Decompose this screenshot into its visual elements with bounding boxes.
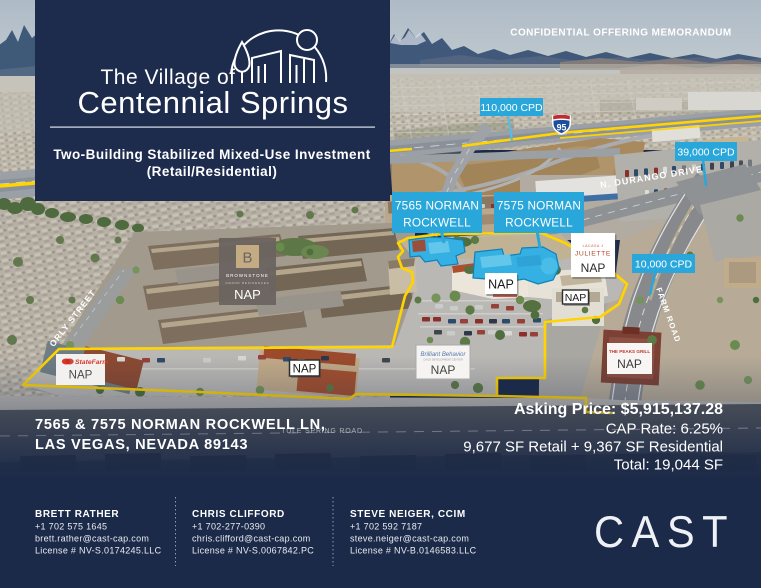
svg-text:NAP: NAP: [565, 292, 587, 304]
svg-text:JULIETTE: JULIETTE: [575, 251, 611, 258]
svg-text:NAP: NAP: [234, 287, 261, 302]
svg-text:7575 NORMAN: 7575 NORMAN: [497, 199, 581, 213]
svg-text:NAP: NAP: [293, 364, 317, 376]
svg-text:GRAND RESIDENCES: GRAND RESIDENCES: [226, 281, 270, 285]
svg-text:THE PEAKS GRILL: THE PEAKS GRILL: [609, 349, 651, 354]
svg-text:+1 702 592 7187: +1 702 592 7187: [350, 522, 422, 532]
svg-text:CONFIDENTIAL OFFERING MEMORAND: CONFIDENTIAL OFFERING MEMORANDUM: [510, 28, 731, 39]
svg-text:(Retail/Residential): (Retail/Residential): [147, 164, 278, 179]
svg-text:LAS VEGAS, NEVADA 89143: LAS VEGAS, NEVADA 89143: [35, 437, 248, 453]
svg-text:110,000 CPD: 110,000 CPD: [480, 102, 543, 114]
svg-text:License # NV-S.0067842.PC: License # NV-S.0067842.PC: [192, 546, 314, 556]
svg-text:NAP: NAP: [431, 363, 456, 377]
svg-text:Brilliant Behavior: Brilliant Behavior: [420, 352, 466, 358]
svg-text:BRETT RATHER: BRETT RATHER: [35, 509, 119, 520]
svg-text:LACASA J: LACASA J: [583, 244, 604, 248]
svg-text:chris.clifford@cast-cap.com: chris.clifford@cast-cap.com: [192, 534, 311, 544]
svg-text:NAP: NAP: [488, 278, 514, 292]
svg-text:NAP: NAP: [581, 261, 606, 275]
svg-text:StateFarm: StateFarm: [75, 359, 108, 366]
svg-text:Asking Price: $5,915,137.28: Asking Price: $5,915,137.28: [514, 401, 723, 418]
svg-text:BROWNSTONE: BROWNSTONE: [226, 273, 269, 278]
svg-text:95: 95: [557, 123, 567, 133]
svg-text:NAP: NAP: [617, 357, 642, 371]
svg-text:ROCKWELL: ROCKWELL: [403, 216, 471, 230]
svg-text:STEVE NEIGER, CCIM: STEVE NEIGER, CCIM: [350, 509, 466, 520]
svg-text:brett.rather@cast-cap.com: brett.rather@cast-cap.com: [35, 534, 149, 544]
svg-text:+1 702-277-0390: +1 702-277-0390: [192, 522, 265, 532]
svg-text:Two-Building Stabilized Mixed-: Two-Building Stabilized Mixed-Use Invest…: [53, 147, 370, 162]
svg-text:Centennial Springs: Centennial Springs: [78, 85, 349, 120]
svg-text:7565 NORMAN: 7565 NORMAN: [395, 199, 479, 213]
svg-text:License # NV-S.0174245.LLC: License # NV-S.0174245.LLC: [35, 546, 162, 556]
svg-text:B: B: [242, 250, 252, 267]
svg-text:ROCKWELL: ROCKWELL: [505, 216, 573, 230]
svg-text:Total: 19,044 SF: Total: 19,044 SF: [614, 457, 723, 474]
svg-text:7565 & 7575 NORMAN ROCKWELL LN: 7565 & 7575 NORMAN ROCKWELL LN,: [35, 417, 326, 433]
svg-text:CHILD DEVELOPMENT CENTER: CHILD DEVELOPMENT CENTER: [423, 358, 463, 362]
svg-text:39,000 CPD: 39,000 CPD: [677, 147, 735, 159]
svg-text:10,000 CPD: 10,000 CPD: [635, 259, 693, 271]
svg-text:CHRIS CLIFFORD: CHRIS CLIFFORD: [192, 509, 285, 520]
svg-text:+1 702 575 1645: +1 702 575 1645: [35, 522, 107, 532]
svg-text:steve.neiger@cast-cap.com: steve.neiger@cast-cap.com: [350, 534, 469, 544]
svg-text:9,677 SF Retail + 9,367 SF Res: 9,677 SF Retail + 9,367 SF Residential: [463, 439, 723, 456]
svg-text:NAP: NAP: [69, 370, 93, 382]
svg-text:CAP Rate: 6.25%: CAP Rate: 6.25%: [606, 421, 723, 438]
svg-text:CAST: CAST: [594, 508, 735, 557]
svg-text:License # NV-B.0146583.LLC: License # NV-B.0146583.LLC: [350, 546, 477, 556]
